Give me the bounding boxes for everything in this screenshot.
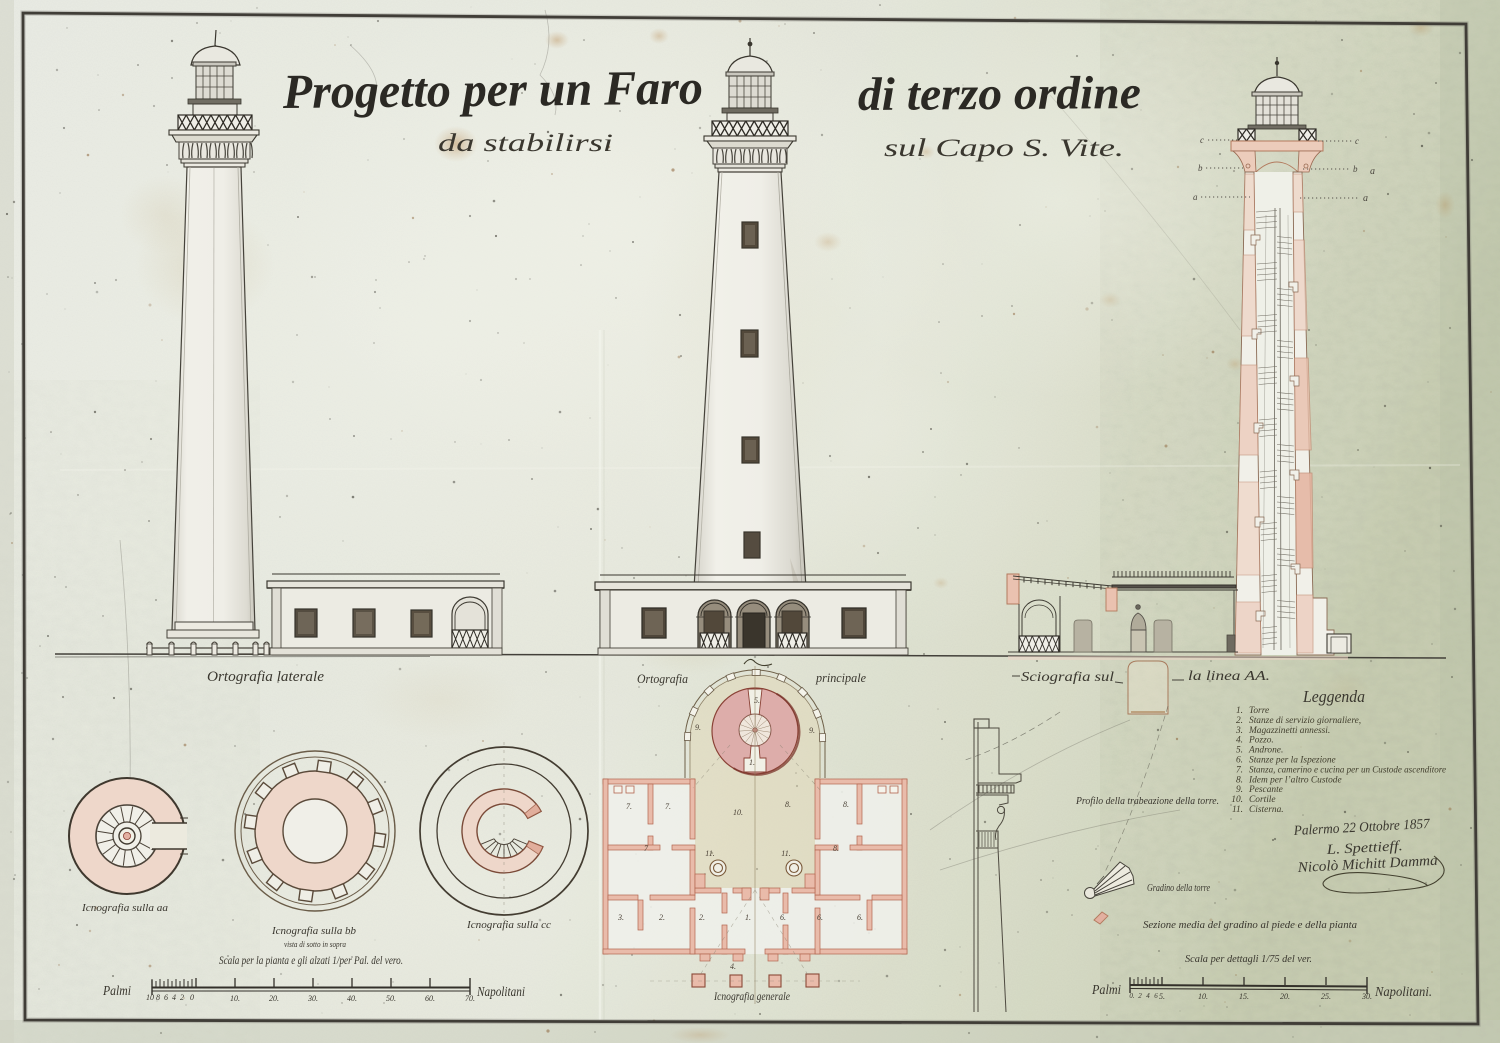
svg-text:9.: 9.: [809, 726, 815, 735]
svg-text:4: 4: [1146, 992, 1150, 1000]
svg-text:5.: 5.: [1159, 992, 1165, 1001]
svg-text:6: 6: [164, 993, 168, 1002]
svg-text:4.: 4.: [1236, 736, 1243, 746]
svg-text:Scala per la pianta e gli alza: Scala per la pianta e gli alzati 1/per P…: [219, 955, 403, 967]
svg-text:6.: 6.: [817, 913, 823, 922]
svg-text:6.: 6.: [780, 913, 786, 922]
svg-text:9.: 9.: [695, 723, 701, 732]
svg-text:2.: 2.: [699, 913, 705, 922]
svg-text:Sciografia sul: Sciografia sul: [1021, 670, 1114, 685]
svg-text:30.: 30.: [1361, 992, 1372, 1001]
svg-text:4: 4: [172, 993, 176, 1002]
svg-text:3.: 3.: [1235, 726, 1243, 736]
svg-text:a: a: [1370, 166, 1375, 177]
svg-text:50.: 50.: [386, 994, 396, 1003]
svg-text:1.: 1.: [1236, 706, 1243, 716]
svg-text:4.: 4.: [730, 962, 736, 971]
svg-text:6.: 6.: [857, 913, 863, 922]
svg-text:8.: 8.: [785, 800, 791, 809]
svg-text:20.: 20.: [1280, 992, 1290, 1001]
svg-text:0: 0: [190, 993, 194, 1002]
svg-text:Pozzo.: Pozzo.: [1248, 736, 1274, 746]
svg-text:Ortografia laterale: Ortografia laterale: [207, 669, 324, 685]
svg-text:10.: 10.: [1198, 992, 1208, 1001]
svg-text:Cortile: Cortile: [1249, 795, 1276, 805]
svg-text:Stanze per la Ispezione: Stanze per la Ispezione: [1249, 756, 1336, 766]
svg-text:vista di sotto in sopra: vista di sotto in sopra: [284, 940, 346, 949]
svg-text:c: c: [1355, 136, 1359, 146]
svg-text:8.: 8.: [1236, 775, 1243, 785]
svg-text:6.: 6.: [1236, 756, 1243, 766]
svg-text:Scala per dettagli 1/75 del v: Scala per dettagli 1/75 del ver.: [1185, 953, 1312, 965]
svg-text:2: 2: [180, 993, 184, 1002]
svg-text:Palmi: Palmi: [102, 984, 131, 999]
svg-text:10.: 10.: [230, 994, 240, 1003]
svg-text:Idem per l’altro Custode: Idem per l’altro Custode: [1248, 775, 1342, 785]
svg-text:25.: 25.: [1321, 992, 1331, 1001]
svg-text:Stanza, camerino e cucina per: Stanza, camerino e cucina per un Custode…: [1249, 765, 1446, 775]
svg-text:10.: 10.: [1231, 795, 1243, 805]
svg-text:sul Capo S. Vite.: sul Capo S. Vite.: [884, 135, 1124, 162]
svg-text:1.: 1.: [745, 913, 751, 922]
svg-text:Cisterna.: Cisterna.: [1249, 805, 1284, 815]
svg-text:10: 10: [146, 993, 154, 1002]
svg-text:7.: 7.: [665, 802, 671, 811]
svg-text:8.: 8.: [843, 800, 849, 809]
svg-text:Magazzinetti annessi.: Magazzinetti annessi.: [1248, 726, 1330, 736]
svg-text:Pescante: Pescante: [1248, 785, 1283, 795]
svg-text:a: a: [1193, 192, 1198, 202]
svg-text:9.: 9.: [1236, 785, 1243, 795]
svg-text:c: c: [1200, 135, 1204, 145]
svg-text:b: b: [1198, 163, 1203, 173]
svg-text:principale: principale: [815, 670, 866, 685]
svg-text:Napolitani: Napolitani: [476, 985, 525, 1000]
svg-text:Torre: Torre: [1249, 706, 1269, 716]
svg-text:20.: 20.: [269, 994, 279, 1003]
svg-text:di terzo ordine: di terzo ordine: [858, 67, 1141, 121]
svg-text:8.: 8.: [833, 844, 839, 853]
svg-text:2: 2: [1138, 992, 1142, 1000]
svg-text:6: 6: [1154, 992, 1158, 1000]
svg-text:5.: 5.: [1236, 746, 1243, 756]
svg-text:la linea AA.: la linea AA.: [1188, 669, 1270, 684]
svg-text:3.: 3.: [617, 913, 624, 922]
svg-text:7.: 7.: [626, 802, 632, 811]
svg-text:11.: 11.: [781, 849, 790, 858]
svg-text:11.: 11.: [705, 849, 714, 858]
svg-text:10.: 10.: [733, 808, 743, 817]
svg-text:Progetto per un Faro: Progetto per un Faro: [282, 60, 704, 119]
svg-text:1.: 1.: [749, 758, 755, 767]
svg-text:a: a: [1363, 193, 1368, 204]
svg-text:Napolitani.: Napolitani.: [1374, 985, 1432, 1000]
svg-text:Ortografia: Ortografia: [637, 671, 688, 686]
svg-text:Icnografia sulla aa: Icnografia sulla aa: [81, 902, 169, 914]
svg-text:7.: 7.: [1236, 765, 1243, 775]
svg-text:15.: 15.: [1239, 992, 1249, 1001]
svg-text:2.: 2.: [1236, 716, 1243, 726]
svg-text:60.: 60.: [425, 994, 435, 1003]
svg-text:11.: 11.: [1232, 805, 1243, 815]
svg-text:0.: 0.: [1129, 992, 1135, 1000]
svg-text:b: b: [1353, 164, 1358, 174]
svg-text:Sezione media del gradino al p: Sezione media del gradino al piede e del…: [1143, 920, 1357, 931]
svg-text:Leggenda: Leggenda: [1302, 687, 1365, 706]
svg-text:Palmi: Palmi: [1091, 983, 1121, 998]
svg-text:da stabilirsi: da stabilirsi: [438, 130, 613, 157]
svg-text:Icnografia sulla bb: Icnografia sulla bb: [271, 925, 356, 937]
svg-text:Gradino della torre: Gradino della torre: [1147, 883, 1210, 894]
svg-text:5.: 5.: [754, 696, 760, 705]
svg-text:Icnografia sulla cc: Icnografia sulla cc: [466, 919, 551, 931]
svg-text:Androne.: Androne.: [1248, 746, 1283, 756]
svg-text:30.: 30.: [307, 994, 318, 1003]
svg-text:40.: 40.: [347, 994, 357, 1003]
svg-text:2.: 2.: [659, 913, 665, 922]
svg-text:Profilo della trabeazione dell: Profilo della trabeazione della torre.: [1075, 795, 1219, 807]
svg-text:Icnografia generale: Icnografia generale: [713, 989, 790, 1003]
svg-text:70.: 70.: [465, 994, 475, 1003]
svg-text:Stanze di servizio giornaliere: Stanze di servizio giornaliere,: [1249, 716, 1361, 726]
svg-text:8: 8: [156, 993, 160, 1002]
